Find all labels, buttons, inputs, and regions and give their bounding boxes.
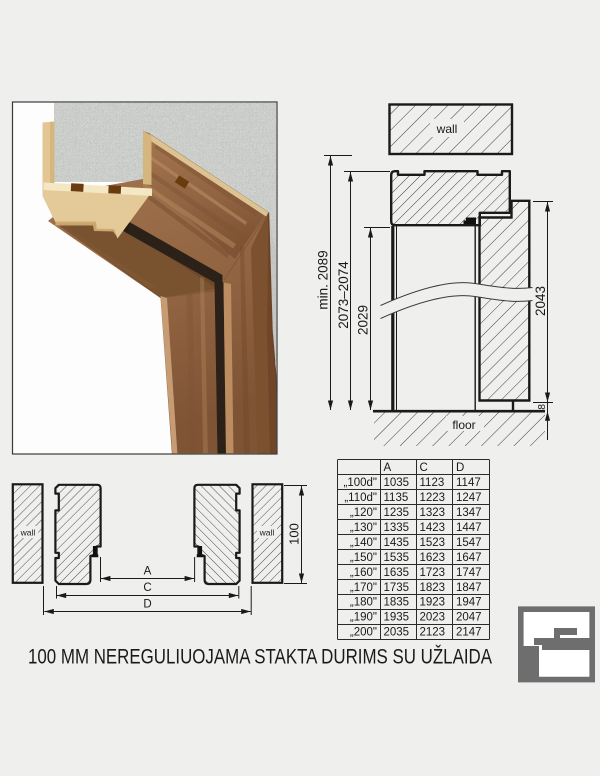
svg-text:„150": „150" [350, 552, 377, 564]
svg-text:D: D [456, 462, 464, 474]
svg-text:D: D [143, 598, 151, 610]
svg-text:„170": „170" [350, 582, 377, 594]
svg-text:1935: 1935 [384, 612, 410, 624]
svg-text:2023: 2023 [420, 612, 446, 624]
svg-text:1947: 1947 [456, 597, 482, 609]
svg-text:1323: 1323 [420, 507, 446, 519]
svg-text:100: 100 [287, 523, 302, 545]
svg-text:1623: 1623 [420, 552, 446, 564]
svg-text:„160": „160" [350, 567, 377, 579]
svg-text:2029: 2029 [356, 305, 371, 335]
svg-text:1247: 1247 [456, 492, 482, 504]
svg-text:C: C [420, 462, 428, 474]
svg-text:„180": „180" [350, 597, 377, 609]
svg-text:1535: 1535 [384, 552, 410, 564]
svg-text:„110d": „110d" [344, 492, 377, 504]
svg-text:2147: 2147 [456, 627, 482, 639]
svg-text:1347: 1347 [456, 507, 482, 519]
svg-text:2047: 2047 [456, 612, 482, 624]
svg-text:„130": „130" [350, 522, 377, 534]
svg-text:1335: 1335 [384, 522, 410, 534]
svg-text:wall: wall [436, 122, 458, 136]
svg-text:1847: 1847 [456, 582, 482, 594]
svg-text:„100d": „100d" [344, 477, 378, 489]
svg-text:1735: 1735 [384, 582, 410, 594]
svg-text:2035: 2035 [384, 627, 410, 639]
svg-text:„190": „190" [350, 612, 377, 624]
svg-text:2073–2074: 2073–2074 [336, 261, 351, 329]
svg-text:1147: 1147 [456, 477, 481, 489]
svg-text:100 MM NEREGULIUOJAMA STAKTA D: 100 MM NEREGULIUOJAMA STAKTA DURIMS SU U… [28, 646, 492, 669]
svg-text:wall: wall [259, 528, 275, 538]
svg-text:1923: 1923 [420, 597, 446, 609]
svg-text:1447: 1447 [456, 522, 482, 534]
svg-text:1523: 1523 [420, 537, 446, 549]
svg-text:„200": „200" [350, 627, 377, 639]
svg-text:1435: 1435 [384, 537, 410, 549]
svg-text:C: C [143, 582, 151, 594]
svg-text:„120": „120" [350, 507, 377, 519]
svg-text:min. 2089: min. 2089 [316, 250, 331, 309]
svg-text:1235: 1235 [384, 507, 410, 519]
svg-text:2043: 2043 [533, 286, 548, 316]
svg-text:1823: 1823 [420, 582, 446, 594]
svg-text:1135: 1135 [384, 492, 409, 504]
svg-text:2123: 2123 [420, 627, 446, 639]
svg-text:1647: 1647 [456, 552, 482, 564]
svg-text:8: 8 [537, 404, 548, 410]
svg-text:1123: 1123 [420, 477, 445, 489]
svg-text:floor: floor [452, 418, 475, 432]
svg-text:A: A [144, 566, 152, 578]
svg-text:1223: 1223 [420, 492, 446, 504]
svg-text:1423: 1423 [420, 522, 446, 534]
svg-text:A: A [384, 462, 392, 474]
svg-text:1835: 1835 [384, 597, 410, 609]
svg-text:1547: 1547 [456, 537, 482, 549]
svg-text:1035: 1035 [384, 477, 410, 489]
svg-text:1635: 1635 [384, 567, 410, 579]
svg-text:1747: 1747 [456, 567, 482, 579]
svg-text:wall: wall [20, 528, 36, 538]
svg-text:1723: 1723 [420, 567, 446, 579]
svg-text:„140": „140" [350, 537, 377, 549]
